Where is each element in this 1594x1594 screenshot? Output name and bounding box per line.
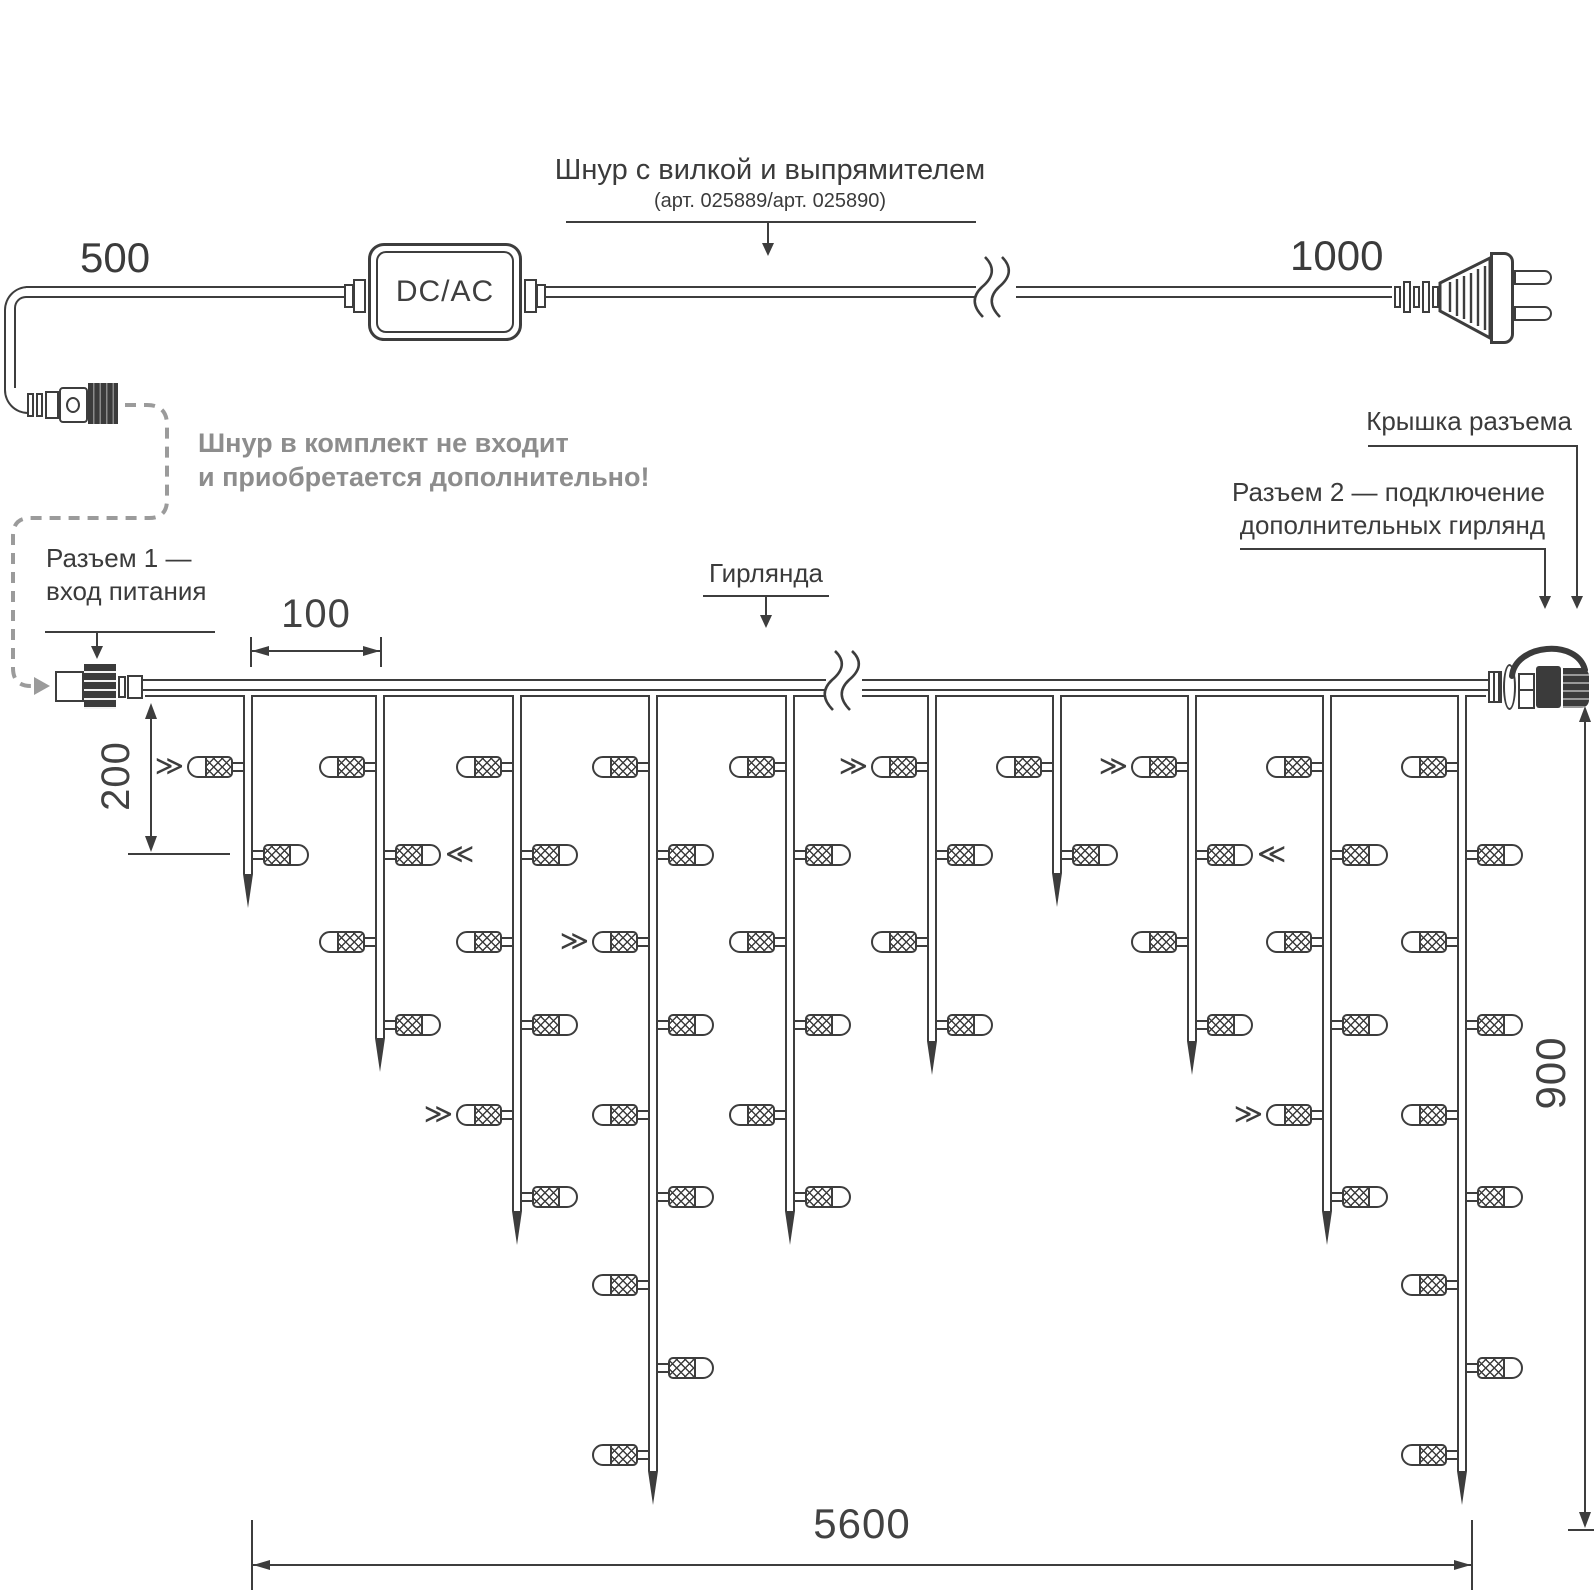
bulb-stub	[253, 850, 263, 860]
bulb-stub	[502, 762, 512, 772]
bulb-stub	[795, 1020, 805, 1030]
led-bulb	[1477, 1186, 1523, 1208]
bulb-stub	[638, 1280, 648, 1290]
dim-200-arrow-bottom-icon	[145, 836, 157, 852]
bulb-stub	[937, 1020, 947, 1030]
led-bulb	[668, 1186, 714, 1208]
bulb-hatch-pattern	[474, 758, 500, 776]
garland-lower-wire	[385, 695, 512, 697]
bulb-hatch-pattern	[747, 933, 773, 951]
bulb-stub	[1312, 1110, 1322, 1120]
garland-lower-wire	[253, 695, 375, 697]
bulb-stub	[775, 762, 785, 772]
bulb-hatch-pattern	[337, 758, 363, 776]
bulb-direction-marker-icon: ≫	[555, 925, 589, 959]
bulb-hatch-pattern	[1419, 933, 1445, 951]
bulb-stub	[658, 1363, 668, 1373]
led-bulb	[1401, 1274, 1447, 1296]
garland-drop	[243, 695, 253, 874]
garland-main-wire	[862, 679, 1488, 691]
dim-900-arrow-bottom-icon	[1579, 1512, 1591, 1528]
bulb-hatch-pattern	[610, 1446, 636, 1464]
led-bulb	[319, 756, 365, 778]
led-bulb	[1401, 1104, 1447, 1126]
bulb-hatch-pattern	[1419, 1446, 1445, 1464]
bulb-hatch-pattern	[265, 846, 291, 864]
bulb-stub	[365, 937, 375, 947]
bulb-hatch-pattern	[670, 846, 696, 864]
bulb-direction-marker-icon: ≫	[1229, 1098, 1263, 1132]
bulb-stub	[638, 1110, 648, 1120]
garland-lower-wire	[658, 695, 785, 697]
led-bulb	[592, 1444, 638, 1466]
garland-lower-wire	[1467, 695, 1486, 697]
led-bulb	[592, 1274, 638, 1296]
bulb-stub	[522, 1192, 532, 1202]
led-bulb	[1342, 1014, 1388, 1036]
bulb-stub	[775, 1110, 785, 1120]
garland-drop-tip	[785, 1211, 795, 1245]
dim-200-tick-bottom	[128, 853, 230, 855]
garland-drop-tip	[1322, 1211, 1332, 1245]
garland-drop-tip	[512, 1211, 522, 1245]
bulb-stub	[795, 1192, 805, 1202]
bulb-stub	[1332, 1020, 1342, 1030]
garland-lower-wire	[1332, 695, 1457, 697]
bulb-hatch-pattern	[1284, 1106, 1310, 1124]
garland-drop-tip	[1052, 873, 1062, 907]
bulb-hatch-pattern	[949, 846, 975, 864]
garland-drop	[1187, 695, 1197, 1041]
bulb-stub	[1447, 1280, 1457, 1290]
bulb-direction-marker-icon: ≪	[445, 838, 479, 872]
bulb-stub	[1467, 850, 1477, 860]
garland-break-icon	[820, 650, 868, 712]
bulb-hatch-pattern	[1284, 933, 1310, 951]
led-bulb	[729, 931, 775, 953]
dim-100-arrow-left-icon	[252, 646, 269, 656]
bulb-hatch-pattern	[1479, 846, 1505, 864]
led-bulb	[395, 844, 441, 866]
led-bulb	[456, 931, 502, 953]
bulb-hatch-pattern	[205, 758, 231, 776]
led-bulb	[996, 756, 1042, 778]
bulb-hatch-pattern	[1284, 758, 1310, 776]
led-bulb	[592, 1104, 638, 1126]
garland-drop	[648, 695, 658, 1471]
bulb-hatch-pattern	[1419, 758, 1445, 776]
bulb-direction-marker-icon: ≫	[834, 750, 868, 784]
led-bulb	[1072, 844, 1118, 866]
garland-drop	[785, 695, 795, 1211]
bulb-stub	[1447, 1450, 1457, 1460]
garland-drop	[375, 695, 385, 1038]
led-bulb	[871, 931, 917, 953]
bulb-hatch-pattern	[1479, 1016, 1505, 1034]
bulb-stub	[917, 937, 927, 947]
led-bulb	[1342, 844, 1388, 866]
bulb-hatch-pattern	[889, 758, 915, 776]
led-bulb	[1131, 756, 1177, 778]
bulb-hatch-pattern	[1344, 846, 1370, 864]
bulb-stub	[658, 1020, 668, 1030]
bulb-stub	[1062, 850, 1072, 860]
bulb-hatch-pattern	[1149, 933, 1175, 951]
bulb-stub	[1467, 1363, 1477, 1373]
bulb-stub	[502, 1110, 512, 1120]
dim-100-label: 100	[248, 592, 384, 637]
bulb-hatch-pattern	[610, 1276, 636, 1294]
bulb-hatch-pattern	[807, 1016, 833, 1034]
bulb-hatch-pattern	[610, 933, 636, 951]
bulb-stub	[1467, 1020, 1477, 1030]
led-bulb	[1342, 1186, 1388, 1208]
led-bulb	[1131, 931, 1177, 953]
led-bulb	[947, 1014, 993, 1036]
bulb-stub	[1332, 1192, 1342, 1202]
led-bulb	[1266, 931, 1312, 953]
bulb-hatch-pattern	[807, 1188, 833, 1206]
led-bulb	[668, 1014, 714, 1036]
bulb-hatch-pattern	[670, 1359, 696, 1377]
garland-drop-tip	[375, 1038, 385, 1072]
led-bulb	[729, 1104, 775, 1126]
led-bulb	[456, 756, 502, 778]
diagram-canvas: 500 Шнур в комплект не входит и приобрет…	[0, 0, 1594, 1594]
bulb-hatch-pattern	[1479, 1359, 1505, 1377]
bulb-stub	[522, 850, 532, 860]
garland-drop	[1457, 695, 1467, 1471]
bulb-stub	[1447, 762, 1457, 772]
bulb-hatch-pattern	[534, 846, 560, 864]
garland-drop-tip	[1187, 1041, 1197, 1075]
garland-lower-wire	[937, 695, 1052, 697]
garland-drop	[927, 695, 937, 1041]
bulb-hatch-pattern	[397, 846, 423, 864]
bulb-hatch-pattern	[474, 1106, 500, 1124]
bulb-hatch-pattern	[949, 1016, 975, 1034]
bulb-hatch-pattern	[1149, 758, 1175, 776]
dim-5600-arrow-right-icon	[1454, 1560, 1471, 1570]
bulb-hatch-pattern	[397, 1016, 423, 1034]
led-bulb	[532, 844, 578, 866]
led-bulb	[532, 1186, 578, 1208]
led-bulb	[1477, 1357, 1523, 1379]
bulb-hatch-pattern	[534, 1188, 560, 1206]
bulb-stub	[522, 1020, 532, 1030]
bulb-stub	[1312, 937, 1322, 947]
bulb-stub	[385, 1020, 395, 1030]
led-bulb	[395, 1014, 441, 1036]
dim-5600-line	[253, 1564, 1471, 1566]
bulb-stub	[233, 762, 243, 772]
bulb-direction-marker-icon: ≫	[150, 750, 184, 784]
dim-200-line	[150, 717, 152, 837]
led-bulb	[805, 1186, 851, 1208]
led-bulb	[871, 756, 917, 778]
garland-drop-tip	[1457, 1471, 1467, 1505]
bulb-stub	[1197, 1020, 1207, 1030]
bulb-stub	[638, 1450, 648, 1460]
dim-5600-ext-left	[251, 1520, 253, 1590]
led-bulb	[1477, 844, 1523, 866]
dim-5600-arrow-left-icon	[253, 1560, 270, 1570]
dim-5600-label: 5600	[762, 1500, 962, 1548]
dim-900-line	[1584, 720, 1586, 1514]
bulb-direction-marker-icon: ≫	[1094, 750, 1128, 784]
led-bulb	[1266, 756, 1312, 778]
bulb-hatch-pattern	[1344, 1188, 1370, 1206]
bulb-hatch-pattern	[610, 758, 636, 776]
garland-lower-wire	[1062, 695, 1187, 697]
bulb-stub	[638, 937, 648, 947]
bulb-hatch-pattern	[534, 1016, 560, 1034]
bulb-hatch-pattern	[747, 1106, 773, 1124]
bulb-stub	[1447, 937, 1457, 947]
dim-100-tick-right	[380, 637, 382, 667]
led-bulb	[1266, 1104, 1312, 1126]
led-bulb	[319, 931, 365, 953]
garland-lower-wire	[862, 695, 927, 697]
led-bulb	[592, 756, 638, 778]
led-bulb	[1207, 1014, 1253, 1036]
bulb-stub	[1447, 1110, 1457, 1120]
bulb-hatch-pattern	[747, 758, 773, 776]
garland-drop-tip	[927, 1041, 937, 1075]
led-bulb	[187, 756, 233, 778]
bulb-hatch-pattern	[1209, 846, 1235, 864]
led-bulb	[263, 844, 309, 866]
bulb-hatch-pattern	[610, 1106, 636, 1124]
led-bulb	[1401, 1444, 1447, 1466]
bulb-direction-marker-icon: ≫	[419, 1098, 453, 1132]
led-bulb	[1477, 1014, 1523, 1036]
bulb-direction-marker-icon: ≪	[1257, 838, 1291, 872]
led-bulb	[1401, 756, 1447, 778]
dim-900-label: 900	[1529, 1013, 1573, 1133]
bulb-stub	[658, 1192, 668, 1202]
bulb-stub	[1467, 1192, 1477, 1202]
bulb-hatch-pattern	[1014, 758, 1040, 776]
led-bulb	[1401, 931, 1447, 953]
bulb-stub	[365, 762, 375, 772]
bulb-stub	[638, 762, 648, 772]
bulb-stub	[1177, 762, 1187, 772]
garland-drop-tip	[243, 874, 253, 908]
bulb-hatch-pattern	[807, 846, 833, 864]
bulb-hatch-pattern	[1479, 1188, 1505, 1206]
bulb-stub	[917, 762, 927, 772]
bulb-stub	[502, 937, 512, 947]
bulb-stub	[658, 850, 668, 860]
bulb-stub	[937, 850, 947, 860]
bulb-hatch-pattern	[1209, 1016, 1235, 1034]
bulb-hatch-pattern	[337, 933, 363, 951]
led-bulb	[592, 931, 638, 953]
led-bulb	[805, 1014, 851, 1036]
garland-drop	[1322, 695, 1332, 1211]
bulb-hatch-pattern	[670, 1016, 696, 1034]
garland-drop-tip	[648, 1471, 658, 1505]
bulb-hatch-pattern	[1419, 1106, 1445, 1124]
dim-100-line	[252, 650, 380, 652]
led-bulb	[805, 844, 851, 866]
led-bulb	[668, 1357, 714, 1379]
bulb-stub	[385, 850, 395, 860]
bulb-hatch-pattern	[889, 933, 915, 951]
bulb-hatch-pattern	[1074, 846, 1100, 864]
bulb-hatch-pattern	[474, 933, 500, 951]
dim-200-label: 200	[94, 716, 138, 836]
garland-main-wire	[143, 679, 826, 691]
bulb-hatch-pattern	[1344, 1016, 1370, 1034]
bulb-stub	[795, 850, 805, 860]
bulb-stub	[1312, 762, 1322, 772]
led-bulb	[947, 844, 993, 866]
led-bulb	[532, 1014, 578, 1036]
led-bulb	[456, 1104, 502, 1126]
led-bulb	[729, 756, 775, 778]
dim-900-tick-bottom	[1568, 1529, 1594, 1531]
bulb-hatch-pattern	[1419, 1276, 1445, 1294]
bulb-stub	[1197, 850, 1207, 860]
bulb-hatch-pattern	[670, 1188, 696, 1206]
dim-100-arrow-right-icon	[363, 646, 380, 656]
bulb-stub	[775, 937, 785, 947]
dim-5600-ext-right	[1471, 1520, 1473, 1590]
bulb-stub	[1177, 937, 1187, 947]
garland-drawing: ≫≪≫≫≫≫≪≫	[0, 0, 1594, 1594]
garland-lower-wire	[522, 695, 648, 697]
led-bulb	[1207, 844, 1253, 866]
bulb-stub	[1042, 762, 1052, 772]
bulb-stub	[1332, 850, 1342, 860]
led-bulb	[668, 844, 714, 866]
garland-drop	[512, 695, 522, 1211]
garland-lower-wire	[1197, 695, 1322, 697]
garland-drop	[1052, 695, 1062, 873]
garland-lower-wire	[145, 695, 243, 697]
